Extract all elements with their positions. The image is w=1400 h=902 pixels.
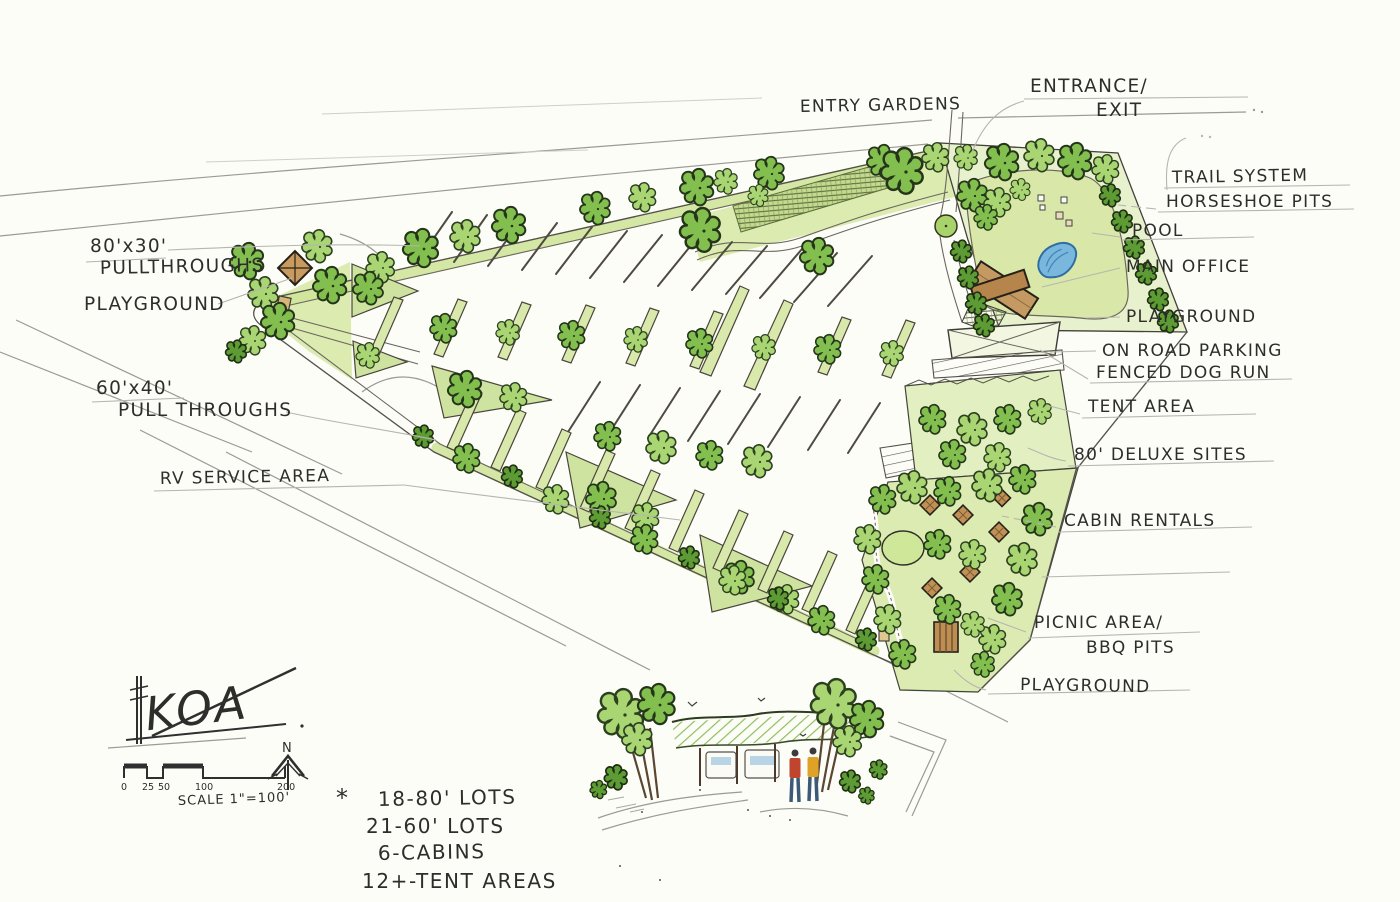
label-pullthroughs-60-line1: 60'x40' <box>96 378 173 399</box>
person-red <box>790 750 801 803</box>
label-main-office: MAIN OFFICE <box>1126 257 1250 277</box>
left-bush <box>604 765 627 790</box>
label-pool: POOL <box>1132 221 1184 241</box>
ground-dots <box>619 789 791 881</box>
label-playground-right: PLAYGROUND <box>1126 307 1256 327</box>
scale-tick-0: 0 <box>121 782 127 793</box>
koa-logo-text: KOA <box>142 675 250 741</box>
label-entrance-exit-line2: EXIT <box>1096 100 1142 121</box>
label-on-road-parking: ON ROAD PARKING <box>1102 341 1283 361</box>
stats-item-tent-areas: 12+-TENT AREAS <box>362 869 557 893</box>
stats-item-cabins: 6-CABINS <box>378 839 486 865</box>
label-entry-gardens: ENTRY GARDENS <box>800 94 962 117</box>
scale-bar: 0 25 50 100 200 SCALE 1"=100' <box>121 766 295 809</box>
koa-logo: KOA <box>108 668 304 748</box>
label-deluxe-sites: 80' DELUXE SITES <box>1074 445 1247 465</box>
title-block: KOA 0 25 50 100 200 SCALE 1"=100' N <box>108 668 308 809</box>
oval-lawn <box>882 531 924 565</box>
label-rv-service-area: RV SERVICE AREA <box>160 466 331 489</box>
label-playground-left: PLAYGROUND <box>84 294 225 315</box>
north-arrow: N <box>268 741 308 790</box>
label-pullthroughs-80-line2: PULLTHROUGHS <box>100 255 265 279</box>
stats-bullet: * <box>336 784 350 812</box>
stats-item-80-lots: 18-80' LOTS <box>378 785 517 811</box>
label-fenced-dog-run: FENCED DOG RUN <box>1096 363 1271 383</box>
person-yellow <box>808 748 819 802</box>
label-picnic-area-line2: BBQ PITS <box>1086 638 1175 658</box>
site-stats: * 18-80' LOTS 21-60' LOTS 6-CABINS 12+-T… <box>336 784 557 893</box>
label-horseshoe-pits: HORSESHOE PITS <box>1166 192 1333 212</box>
scale-tick-25: 25 <box>142 782 154 793</box>
rv-shapes <box>706 750 779 778</box>
right-bush <box>840 770 861 793</box>
stats-item-60-lots: 21-60' LOTS <box>366 814 505 838</box>
scale-caption: SCALE 1"=100' <box>178 790 291 809</box>
entrance-vignette <box>590 679 887 881</box>
picnic-shelter <box>934 622 958 652</box>
site-plan-drawing: ENTRANCE/ EXIT ENTRY GARDENS TRAIL SYSTE… <box>0 0 1400 902</box>
label-cabin-rentals: CABIN RENTALS <box>1064 511 1215 531</box>
campground-site-plan-sketch: ENTRANCE/ EXIT ENTRY GARDENS TRAIL SYSTE… <box>0 0 1400 902</box>
label-pullthroughs-60-line2: PULL THROUGHS <box>118 400 292 421</box>
scale-tick-100: 100 <box>195 782 213 793</box>
label-entrance-exit-line1: ENTRANCE/ <box>1030 76 1148 97</box>
label-pullthroughs-80-line1: 80'x30' <box>90 236 167 257</box>
label-playground-bottom: PLAYGROUND <box>1020 675 1151 697</box>
site-area <box>226 110 1187 692</box>
label-tent-area: TENT AREA <box>1087 397 1195 417</box>
label-trail-system: TRAIL SYSTEM <box>1171 166 1309 188</box>
callout-labels: ENTRANCE/ EXIT ENTRY GARDENS TRAIL SYSTE… <box>84 76 1333 697</box>
lot-strip-row-60ft <box>447 389 881 634</box>
scale-tick-50: 50 <box>158 782 170 793</box>
north-label: N <box>282 741 293 756</box>
label-picnic-area-line1: PICNIC AREA/ <box>1034 613 1163 633</box>
